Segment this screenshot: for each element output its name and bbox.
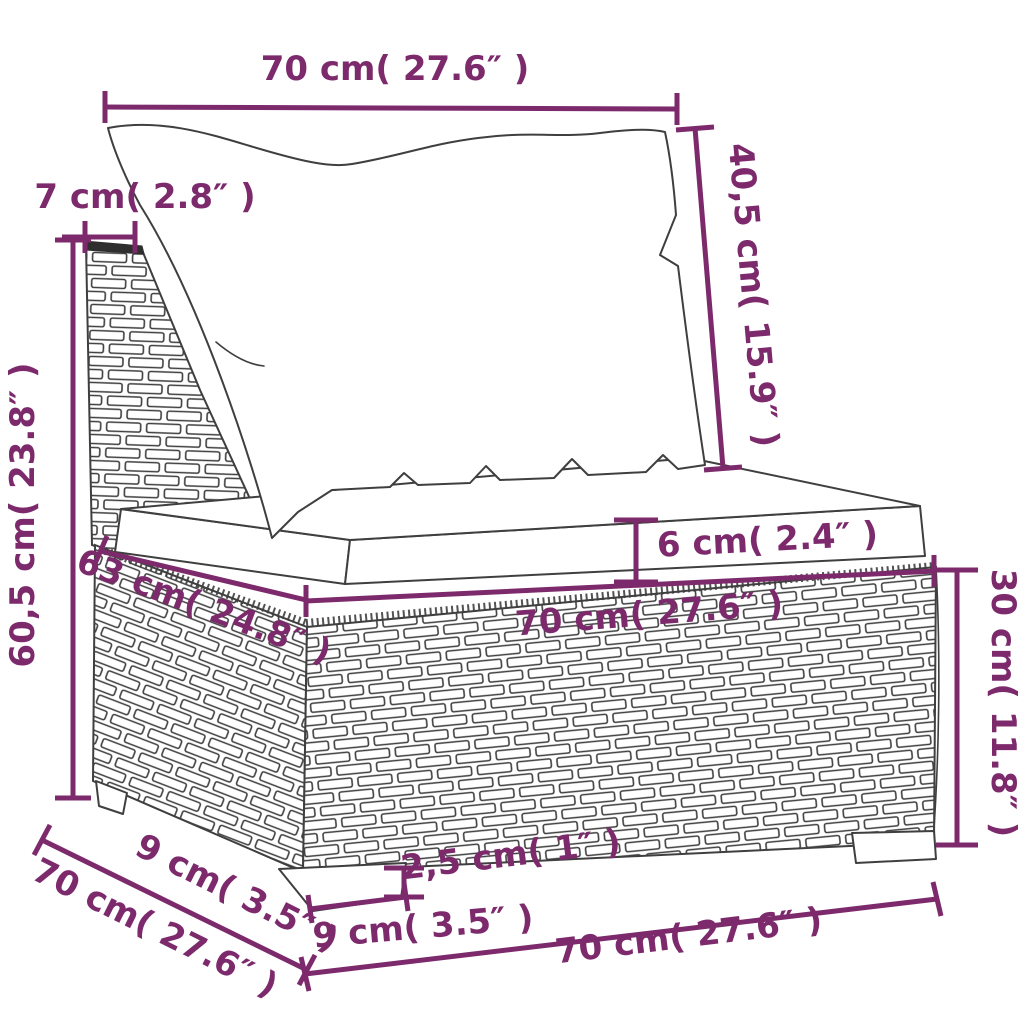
dim-label-total-height: 60,5 cm( 23.8″ ) — [3, 362, 43, 667]
diagram-page: 70 cm( 27.6″ ) 7 cm( 2.8″ ) 60,5 cm( 23.… — [0, 0, 1024, 1024]
dim-line-base-height — [936, 570, 978, 845]
dim-label-bottom-width: 70 cm( 27.6″ ) — [553, 900, 824, 972]
dim-label-base-height: 30 cm( 11.8″ ) — [983, 569, 1023, 838]
dim-label-top-width: 70 cm( 27.6″ ) — [261, 49, 530, 89]
dim-line-top-width — [105, 91, 677, 125]
sofa-dimension-diagram: 70 cm( 27.6″ ) 7 cm( 2.8″ ) 60,5 cm( 23.… — [0, 0, 1024, 1024]
foot-right — [852, 831, 936, 863]
dim-label-post-depth: 7 cm( 2.8″ ) — [34, 177, 255, 217]
dim-label-back-cushion-height: 40,5 cm( 15.9″ ) — [720, 141, 786, 448]
dim-line-total-height — [55, 240, 91, 798]
